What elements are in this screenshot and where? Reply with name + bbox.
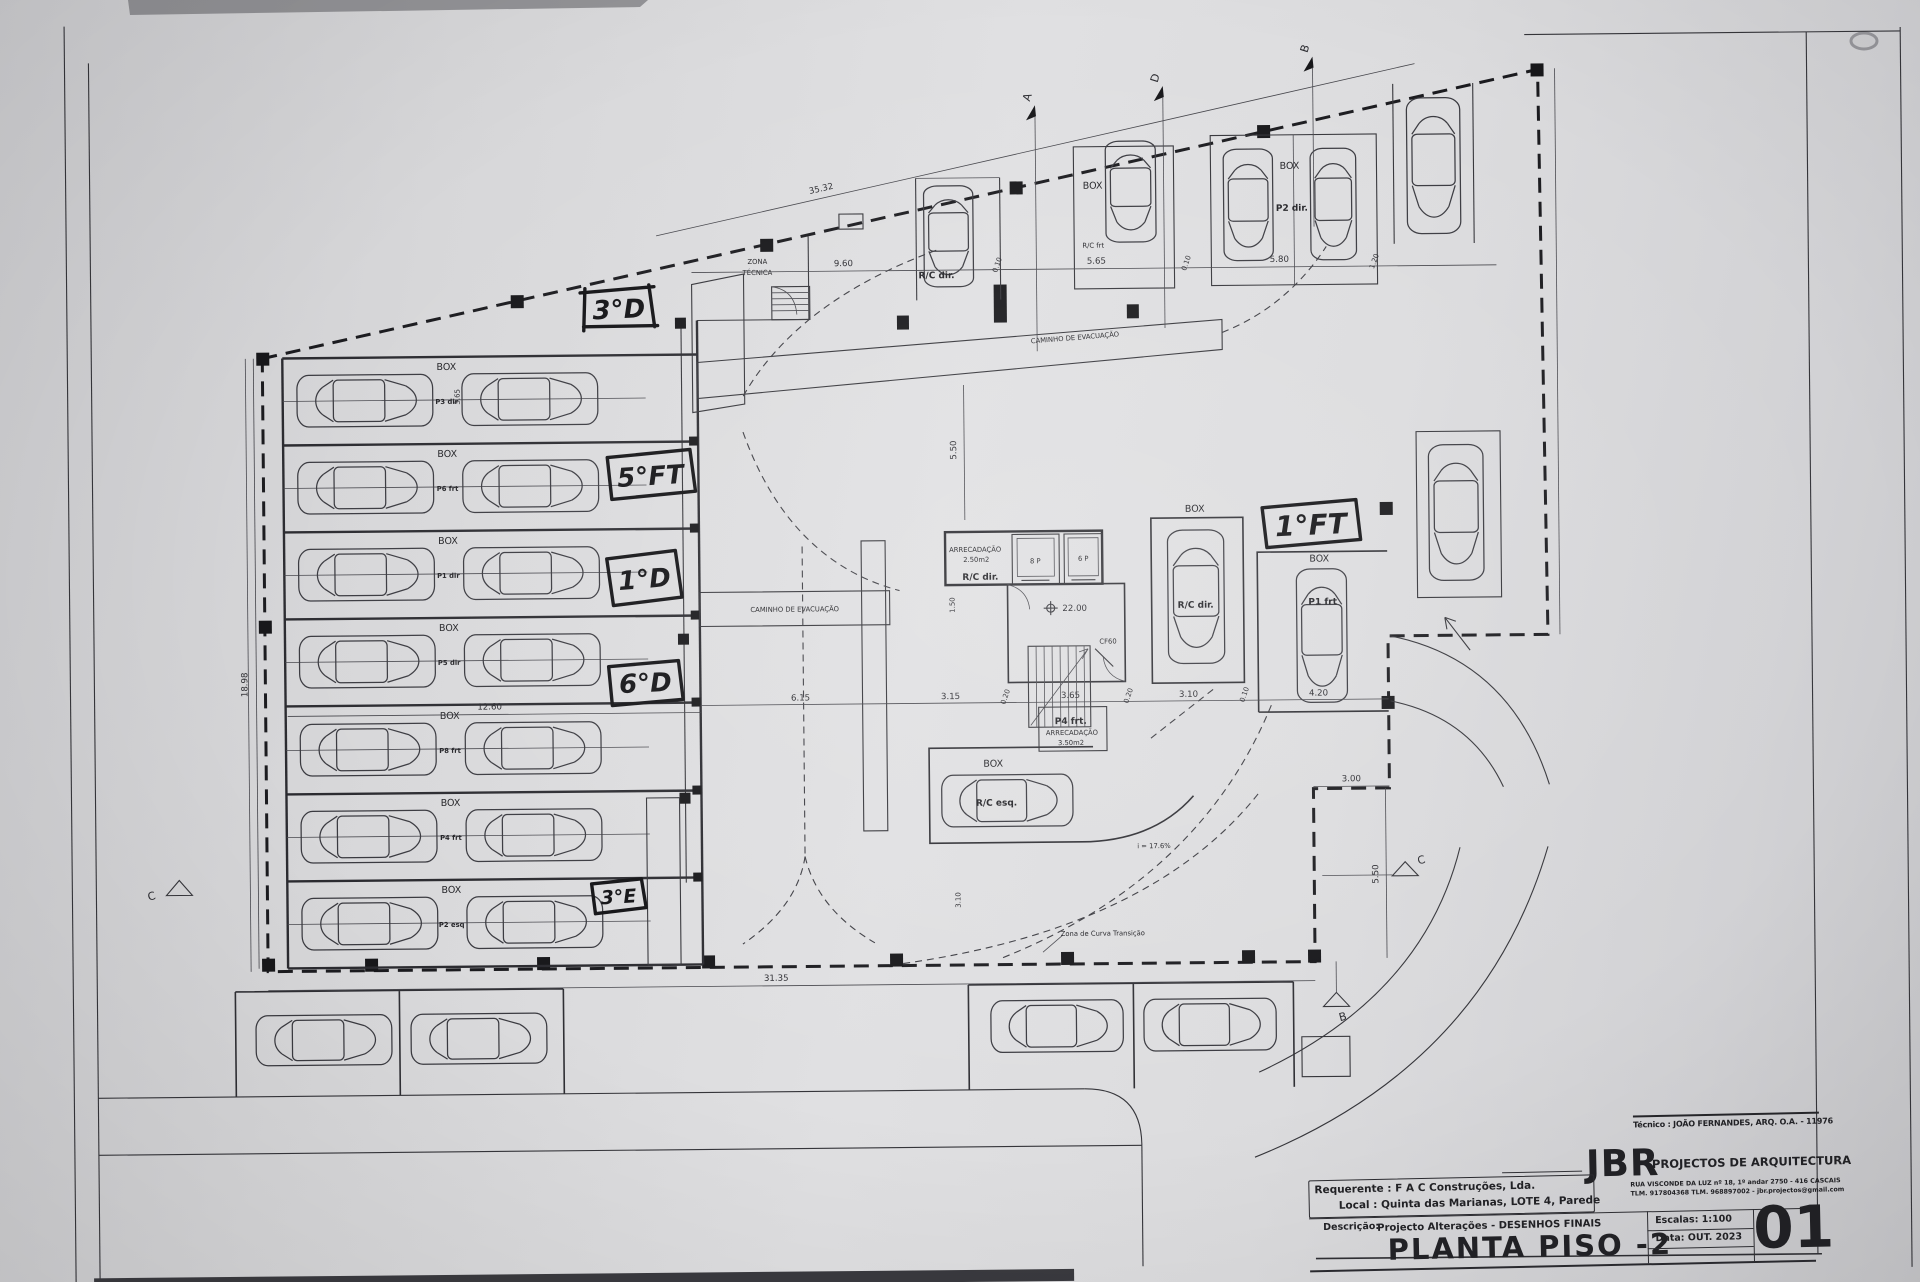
stall-label-rc-dir: R/C dir. bbox=[1178, 601, 1214, 611]
sheet-frame bbox=[64, 9, 1912, 1282]
stall-label-rc-dir: R/C dir. bbox=[918, 271, 954, 281]
box-label: BOX bbox=[438, 536, 458, 547]
tecnico-line: Técnico : JOÃO FERNANDES, ARQ. O.A. - 11… bbox=[1633, 1112, 1819, 1130]
dim-5-65: 5.65 bbox=[1087, 257, 1106, 267]
title-block: Técnico : JOÃO FERNANDES, ARQ. O.A. - 11… bbox=[1299, 1094, 1822, 1277]
note-3e: 3°E bbox=[592, 879, 647, 914]
dim-0-20: 0.20 bbox=[999, 688, 1012, 705]
note-6d: 6°D bbox=[608, 660, 683, 705]
dim-1-50: 1.50 bbox=[949, 597, 957, 613]
left-parking-block: BOX P3 dir BOX P6 frt BOX P1 dir BOX P5 … bbox=[245, 318, 703, 972]
dim-0-10: 0.10 bbox=[1180, 254, 1193, 271]
scale-value: Escalas: 1:100 bbox=[1655, 1214, 1732, 1227]
central-core: ARRECADAÇÃO 2.50m2 R/C dir. 8 P 6 P 22.0… bbox=[945, 530, 1126, 752]
storage-owner-rc-dir: R/C dir. bbox=[962, 573, 998, 583]
section-marker-a: A bbox=[1020, 91, 1035, 103]
note-1ft: 1°FT bbox=[1262, 499, 1361, 547]
section-markers: A D B C C B bbox=[138, 42, 1428, 1036]
curva-transicao-label: Zona de Curva Transição bbox=[1061, 929, 1145, 938]
divider bbox=[1502, 1171, 1582, 1174]
section-marker-c: C bbox=[1416, 853, 1427, 868]
stall-label-p1-frt: P1 frt bbox=[1308, 597, 1337, 607]
stall-label-rc-esq: R/C esq. bbox=[976, 798, 1017, 808]
stall-rc-dir-centre: BOX R/C dir. bbox=[1151, 503, 1245, 683]
section-marker-c: C bbox=[146, 889, 157, 904]
floor-plan-drawing: BOX P3 dir BOX P6 frt BOX P1 dir BOX P5 … bbox=[0, 0, 1920, 1282]
dim-4-20: 4.20 bbox=[1309, 688, 1328, 698]
sheet-bottom-band bbox=[94, 1269, 1074, 1282]
box-label: BOX bbox=[1185, 504, 1205, 515]
photo-table-edge bbox=[128, 0, 648, 15]
lift-6p-label: 6 P bbox=[1078, 555, 1089, 563]
date-value: Data: OUT. 2023 bbox=[1655, 1231, 1742, 1244]
note-3d: 3°D bbox=[580, 285, 658, 331]
section-marker-d: D bbox=[1148, 72, 1163, 84]
storage-area: 2.50m2 bbox=[963, 556, 989, 564]
dim-3-10: 3.10 bbox=[1179, 690, 1198, 700]
entry-stall-top-centre: R/C dir. bbox=[916, 178, 1001, 301]
section-marker-b: B bbox=[1338, 1010, 1349, 1024]
svg-text:5°FT: 5°FT bbox=[616, 460, 687, 494]
dim-3-10: 3.10 bbox=[954, 892, 962, 908]
dim-5-80: 5.80 bbox=[1270, 255, 1289, 265]
box-label: BOX bbox=[441, 798, 461, 809]
box-label: BOX bbox=[983, 759, 1003, 770]
caminho-evacuacao-label: CAMINHO DE EVACUAÇÃO bbox=[750, 604, 839, 614]
garage-row-labels: BOX P3 dir BOX P6 frt BOX P1 dir BOX P5 … bbox=[434, 362, 467, 929]
dim-18-98: 18.98 bbox=[240, 673, 250, 698]
photographed-drawing-sheet: BOX P3 dir BOX P6 frt BOX P1 dir BOX P5 … bbox=[0, 0, 1920, 1282]
box-label: BOX bbox=[439, 623, 459, 634]
box-label: BOX bbox=[440, 711, 460, 722]
stall-label-rc-frt: R/C frt bbox=[1082, 242, 1104, 250]
dim-5-50: 5.50 bbox=[949, 440, 959, 459]
dim-35-32: 35.32 bbox=[808, 182, 834, 197]
stall-label-p2-dir: P2 dir. bbox=[1276, 204, 1308, 214]
stall-label: P6 frt bbox=[437, 485, 459, 493]
svg-text:1°FT: 1°FT bbox=[1274, 507, 1349, 543]
ramps-and-walkways: CAMINHO DE EVACUAÇÃO CAMINHO DE EVACUAÇÃ… bbox=[641, 269, 1228, 965]
svg-text:3°E: 3°E bbox=[600, 885, 637, 909]
stall-label: P1 dir bbox=[437, 572, 460, 580]
dim-31-35: 31.35 bbox=[764, 974, 789, 984]
ramp-slope-label: i = 17.6% bbox=[1137, 842, 1171, 850]
punch-hole-mark bbox=[1851, 33, 1877, 49]
box-label: BOX bbox=[436, 362, 456, 373]
svg-text:6°D: 6°D bbox=[618, 668, 672, 700]
box-label: BOX bbox=[1280, 161, 1300, 172]
dim-0-10: 0.10 bbox=[991, 256, 1004, 273]
descricao-label: Descrição: bbox=[1323, 1221, 1379, 1233]
dim-6-15: 6.15 bbox=[791, 693, 810, 703]
box-label: BOX bbox=[1309, 553, 1329, 564]
dim-3-65: 3.65 bbox=[1061, 691, 1080, 701]
sheet-number: 01 bbox=[1753, 1196, 1816, 1259]
svg-text:3°D: 3°D bbox=[592, 294, 646, 326]
note-1d: 1°D bbox=[607, 550, 683, 606]
door-cf60-label: CF60 bbox=[1099, 637, 1116, 645]
stall-label: P5 dir bbox=[438, 659, 461, 667]
storage-area: 3.50m2 bbox=[1058, 739, 1084, 747]
svg-text:1°D: 1°D bbox=[617, 563, 672, 597]
stall-label: P4 frt bbox=[440, 834, 462, 842]
stall-label: P2 esq bbox=[439, 921, 465, 929]
section-marker-b: B bbox=[1298, 43, 1313, 54]
drawing-title: PLANTA PISO -2 bbox=[1387, 1227, 1672, 1267]
dim-3-00: 3.00 bbox=[1342, 774, 1361, 784]
dim-3-65: 3.65 bbox=[454, 389, 462, 405]
dim-1-20: 1.20 bbox=[1368, 253, 1381, 270]
dim-0-10: 0.10 bbox=[1238, 686, 1251, 703]
dim-12-60: 12.60 bbox=[477, 702, 502, 712]
stall-right-middle bbox=[1416, 431, 1502, 598]
storage-owner-p4: P4 frt. bbox=[1055, 717, 1087, 727]
dim-3-15: 3.15 bbox=[941, 692, 960, 702]
level-value: 22.00 bbox=[1062, 604, 1087, 614]
dim-0-20: 0.20 bbox=[1122, 687, 1135, 704]
box-label: BOX bbox=[1083, 181, 1103, 192]
storage-label: ARRECADAÇÃO bbox=[1046, 728, 1098, 737]
lift-8p-label: 8 P bbox=[1030, 557, 1041, 565]
zona-tecnica-label: ZONA bbox=[747, 258, 767, 266]
stall-rc-esq: BOX R/C esq. i = 17.6% bbox=[929, 746, 1194, 853]
box-label: BOX bbox=[437, 449, 457, 460]
dim-9-60: 9.60 bbox=[834, 259, 853, 269]
garage-row-walls bbox=[282, 355, 703, 969]
dim-5-50: 5.50 bbox=[1371, 864, 1381, 883]
storage-label: ARRECADAÇÃO bbox=[949, 545, 1001, 554]
firm-initials: JBR bbox=[1585, 1141, 1659, 1186]
street-bottom bbox=[97, 981, 1352, 1276]
box-label: BOX bbox=[441, 885, 461, 896]
stall-label: P8 frt bbox=[439, 747, 461, 755]
